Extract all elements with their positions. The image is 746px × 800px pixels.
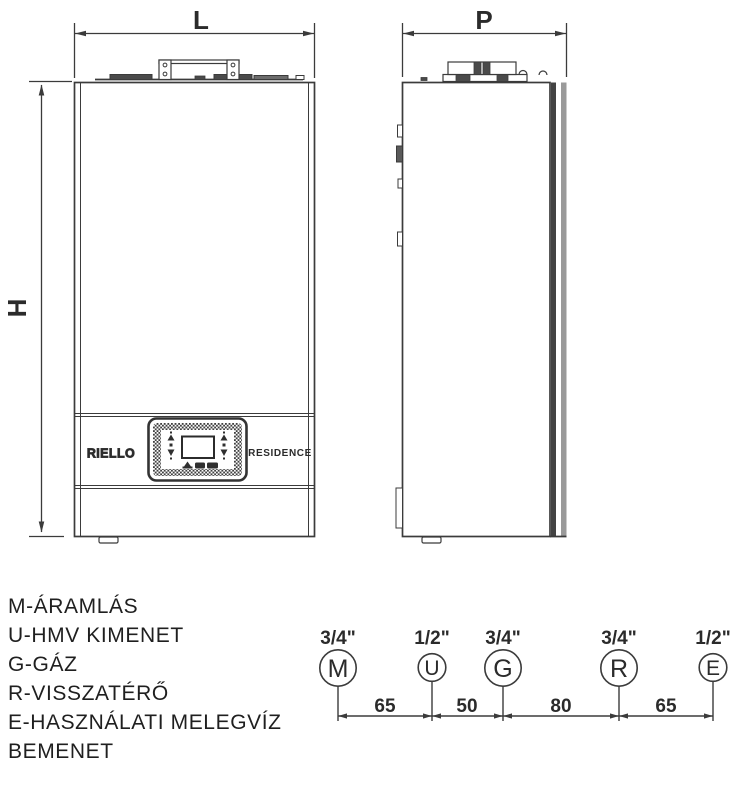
spacing-value: 65 — [374, 696, 396, 717]
connection-letter: R — [610, 655, 628, 683]
dimension-label-height: H — [2, 299, 32, 318]
connection-gas: 3/4" G — [485, 628, 521, 686]
connection-size-label: 3/4" — [601, 628, 636, 649]
legend-line-dhw-in-cont: BEMENET — [8, 737, 348, 766]
panel-screen — [182, 437, 214, 459]
connection-size-label: 3/4" — [485, 628, 520, 649]
legend-line-dhw-out: U-HMV KIMENET — [8, 621, 348, 650]
boiler-dimension-drawing: L H P — [0, 0, 746, 800]
connection-letter: U — [424, 657, 439, 680]
dimension-label-depth: P — [475, 5, 492, 35]
connection-return: 3/4" R — [601, 628, 637, 686]
connection-letter: G — [493, 655, 512, 683]
panel-mode-buttons-icon — [183, 462, 219, 469]
side-rear-gray-band — [561, 83, 567, 537]
connections-diagram: 3/4" M 1/2" U 3/4" G 3/4" R — [320, 628, 731, 721]
side-rear-dark-band — [551, 83, 556, 537]
dimension-height — [29, 82, 72, 537]
model-label: RESIDENCE — [248, 448, 312, 459]
legend-line-gas: G-GÁZ — [8, 650, 348, 679]
legend-line-return: R-VISSZATÉRŐ — [8, 679, 348, 708]
brand-logo: RIELLO — [87, 447, 135, 461]
legend: M-ÁRAMLÁS U-HMV KIMENET G-GÁZ R-VISSZATÉ… — [8, 592, 348, 766]
legend-line-dhw-in: E-HASZNÁLATI MELEGVÍZ — [8, 708, 348, 737]
connection-dhw-out: 1/2" U — [414, 628, 449, 681]
spacing-value: 65 — [655, 696, 677, 717]
control-panel — [149, 419, 247, 481]
connection-dhw-in: 1/2" E — [695, 628, 730, 681]
spacing-value: 80 — [550, 696, 571, 717]
spacing-value: 50 — [456, 696, 477, 717]
dimension-label-width: L — [193, 5, 209, 35]
legend-line-flow: M-ÁRAMLÁS — [8, 592, 348, 621]
connection-letter: E — [706, 657, 720, 680]
connection-size-label: 1/2" — [414, 628, 449, 649]
connection-size-label: 1/2" — [695, 628, 730, 649]
boiler-side-view — [396, 62, 567, 543]
